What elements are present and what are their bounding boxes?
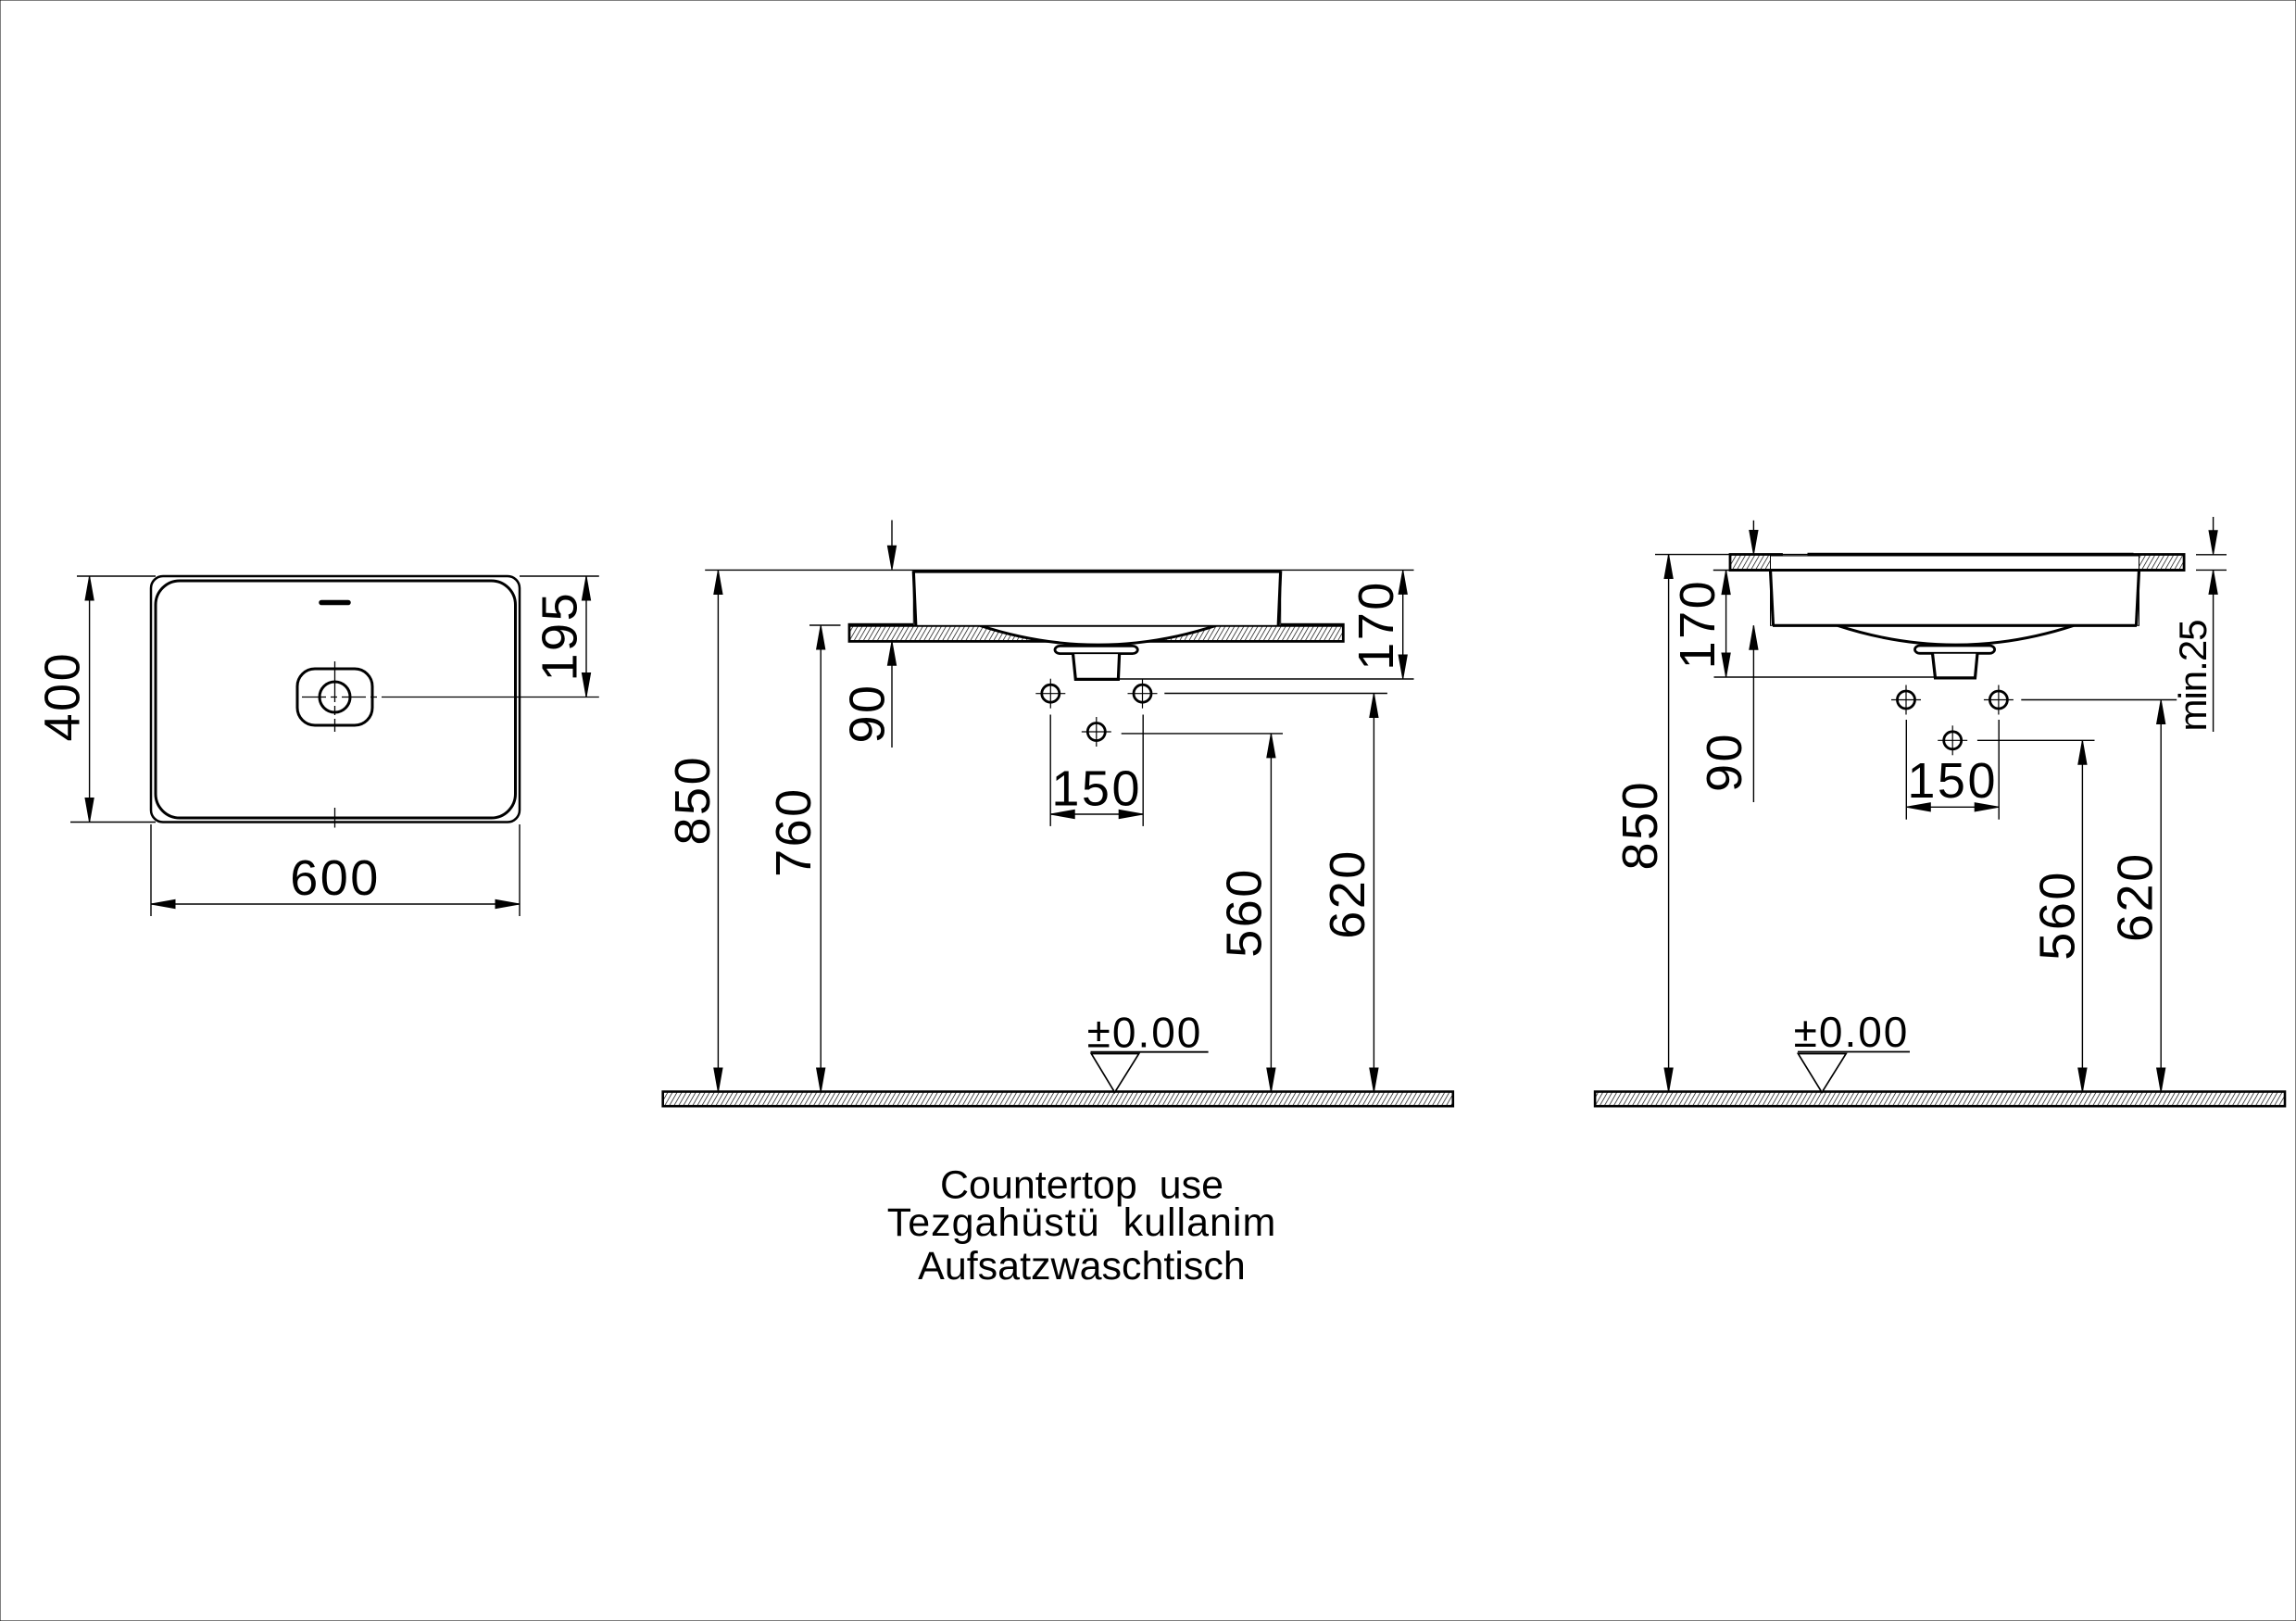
svg-text:560: 560 — [2030, 870, 2086, 961]
svg-text:760: 760 — [766, 786, 822, 877]
svg-text:850: 850 — [665, 755, 721, 846]
svg-text:560: 560 — [1217, 867, 1273, 958]
svg-text:min.25: min.25 — [2171, 620, 2214, 731]
svg-text:400: 400 — [34, 651, 90, 742]
svg-text:90: 90 — [1697, 732, 1752, 792]
svg-text:±0.00: ±0.00 — [1087, 1009, 1203, 1057]
svg-text:195: 195 — [533, 591, 588, 682]
svg-text:600: 600 — [290, 850, 381, 906]
svg-text:170: 170 — [1349, 580, 1404, 671]
svg-text:150: 150 — [1907, 753, 1998, 809]
svg-text:850: 850 — [1612, 780, 1668, 871]
svg-text:90: 90 — [840, 683, 896, 743]
svg-text:Tezgahüstü kullanim: Tezgahüstü kullanim — [887, 1200, 1277, 1245]
svg-text:±0.00: ±0.00 — [1794, 1008, 1910, 1056]
svg-text:150: 150 — [1051, 760, 1142, 816]
svg-text:620: 620 — [1320, 848, 1375, 939]
svg-text:Aufsatzwaschtisch: Aufsatzwaschtisch — [918, 1244, 1246, 1288]
svg-text:170: 170 — [1670, 579, 1725, 670]
svg-text:620: 620 — [2108, 851, 2164, 942]
